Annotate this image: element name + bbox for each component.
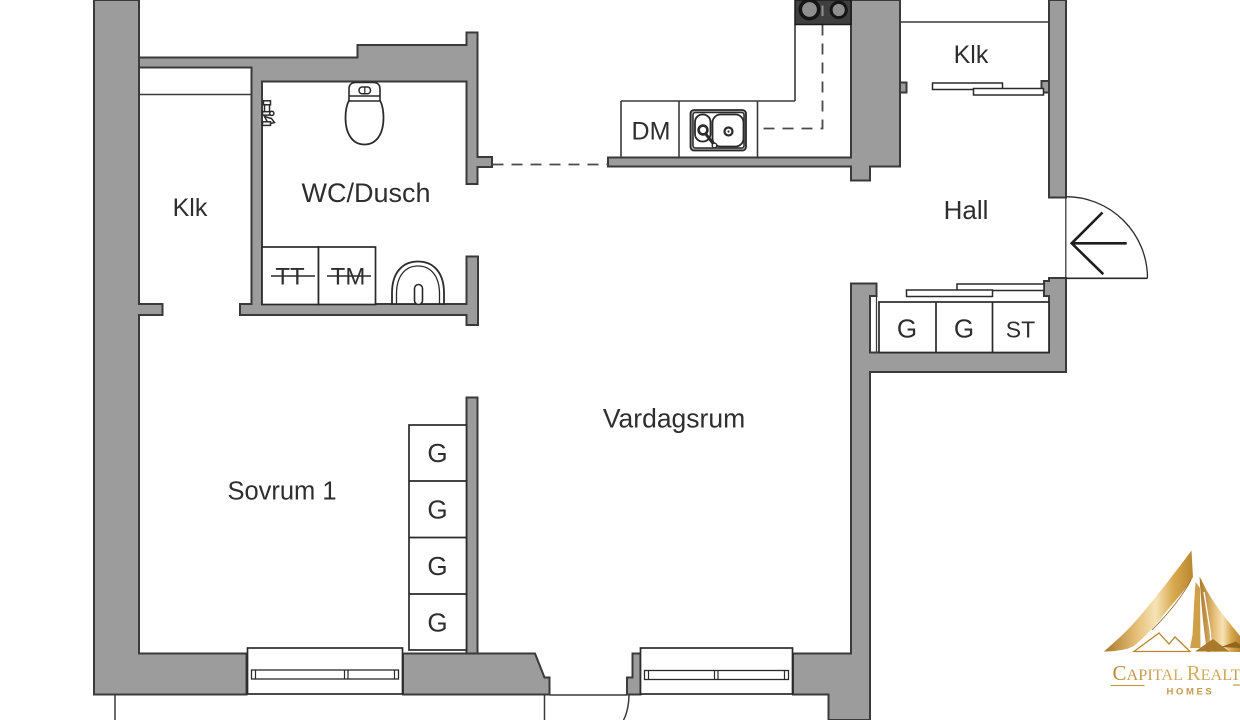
svg-text:G: G [954,313,974,343]
svg-text:TT: TT [275,264,305,291]
svg-text:G: G [897,313,917,343]
svg-text:Klk: Klk [173,194,208,222]
svg-text:Klk: Klk [954,41,989,69]
svg-text:WC/Dusch: WC/Dusch [301,178,430,208]
svg-text:Hall: Hall [944,195,989,225]
svg-text:G: G [427,551,447,581]
svg-text:CAPITAL REALTY: CAPITAL REALTY [1113,661,1240,685]
svg-text:ST: ST [1006,316,1035,342]
svg-text:G: G [427,495,447,525]
svg-text:Vardagsrum: Vardagsrum [603,404,745,434]
svg-text:TM: TM [331,264,366,291]
svg-text:Sovrum 1: Sovrum 1 [227,478,336,506]
svg-text:DM: DM [632,118,671,146]
svg-text:HOMES: HOMES [1167,687,1215,698]
svg-text:G: G [427,438,447,468]
svg-text:G: G [427,608,447,638]
